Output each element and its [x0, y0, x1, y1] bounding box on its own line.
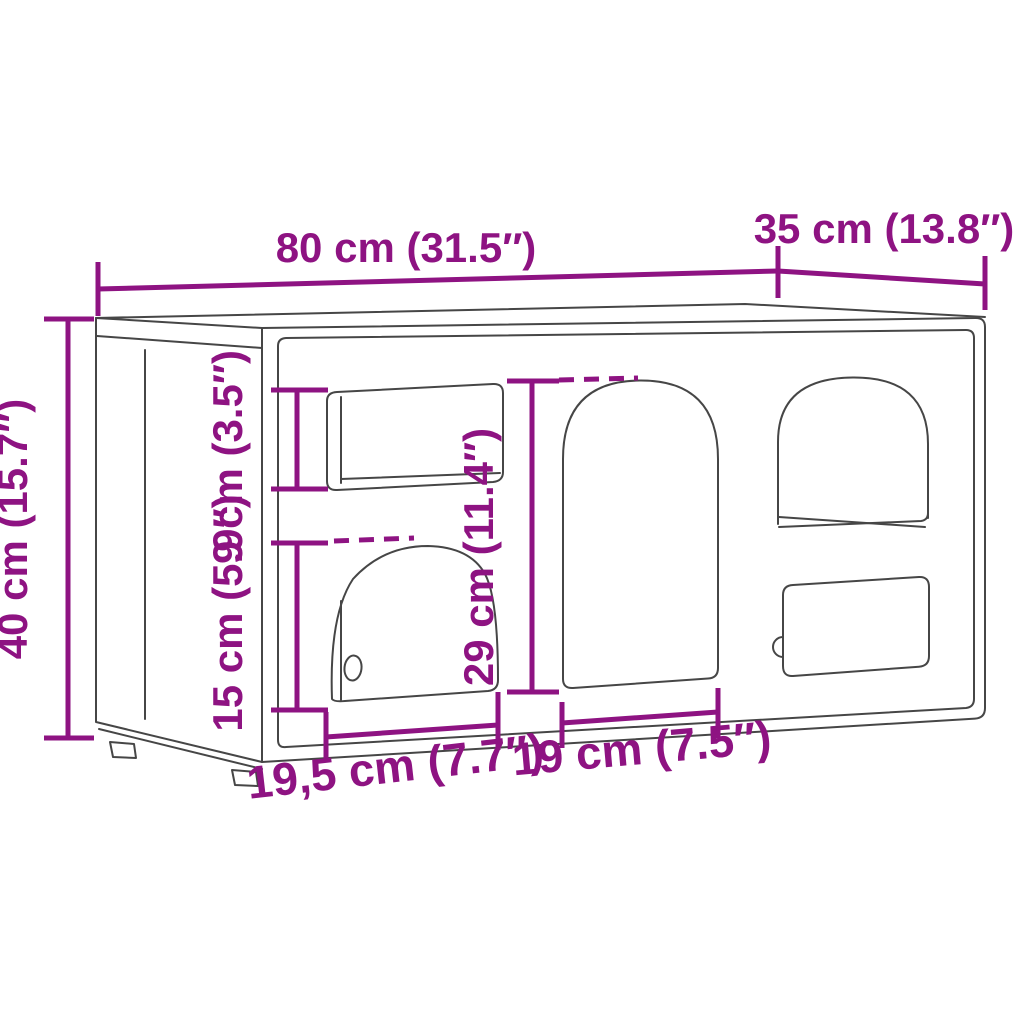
- width-line: [98, 271, 778, 289]
- bottom-right-notch: [773, 637, 783, 657]
- dimension-diagram: 80 cm (31.5″) 35 cm (13.8″) 40 cm (15.7″…: [0, 0, 1024, 1024]
- right-arch-opening: [778, 377, 928, 524]
- label-lower-opening-height: 15 cm (5.9″): [204, 494, 251, 731]
- dimension-labels: 80 cm (31.5″) 35 cm (13.8″) 40 cm (15.7″…: [0, 205, 1014, 809]
- label-overall-width: 80 cm (31.5″): [276, 224, 537, 271]
- arch-height-ref-dashed: [559, 378, 638, 380]
- label-overall-height: 40 cm (15.7″): [0, 399, 36, 660]
- label-left-opening-width: 19,5 cm (7.7″): [244, 723, 546, 808]
- label-middle-opening-width: 19 cm (7.5″): [510, 711, 773, 785]
- foot-left: [110, 742, 136, 758]
- depth-line: [778, 271, 985, 284]
- bottom-right-opening: [783, 577, 929, 676]
- dome-cable-hole: [343, 655, 363, 682]
- label-arch-opening-height: 29 cm (11.4″): [455, 428, 502, 686]
- middle-arch-opening: [563, 380, 718, 688]
- label-overall-depth: 35 cm (13.8″): [754, 205, 1015, 252]
- lower-height-ref-dashed: [334, 538, 414, 541]
- diagram-canvas: 80 cm (31.5″) 35 cm (13.8″) 40 cm (15.7″…: [0, 0, 1024, 1024]
- top-face-left-sliver: [96, 318, 262, 328]
- left-panel-top-edge: [97, 336, 262, 348]
- top-face-edge: [96, 304, 985, 318]
